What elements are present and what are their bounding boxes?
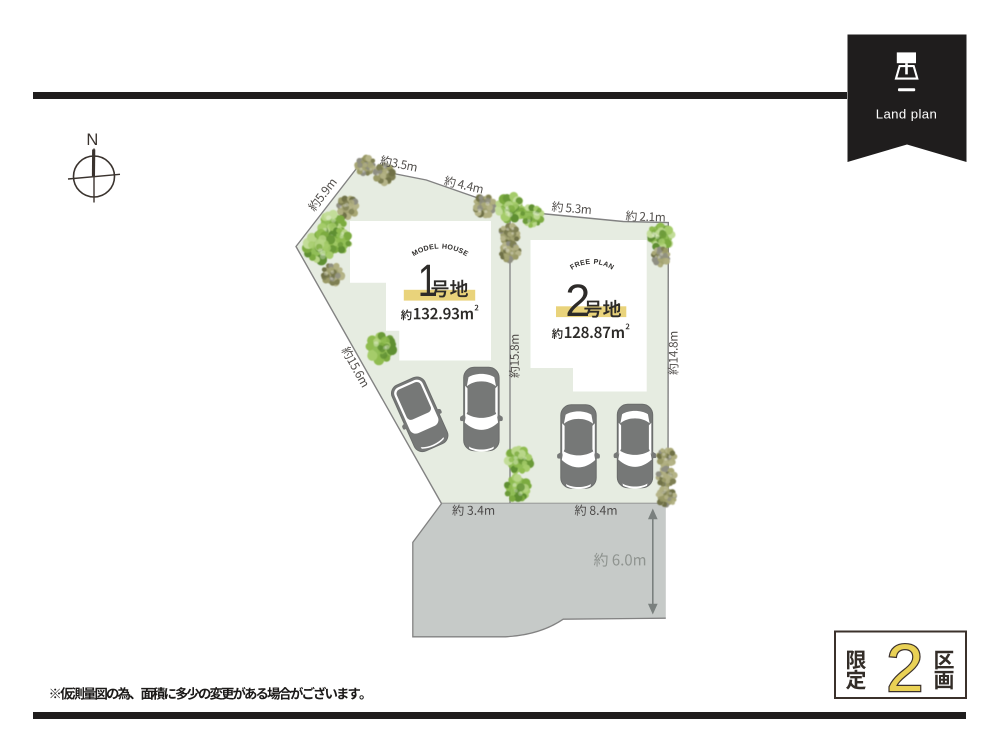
svg-text:2: 2 — [886, 631, 923, 706]
svg-text:2: 2 — [565, 275, 590, 326]
svg-text:1: 1 — [418, 255, 438, 306]
svg-text:Land plan: Land plan — [876, 107, 938, 122]
svg-text:N: N — [86, 131, 98, 149]
